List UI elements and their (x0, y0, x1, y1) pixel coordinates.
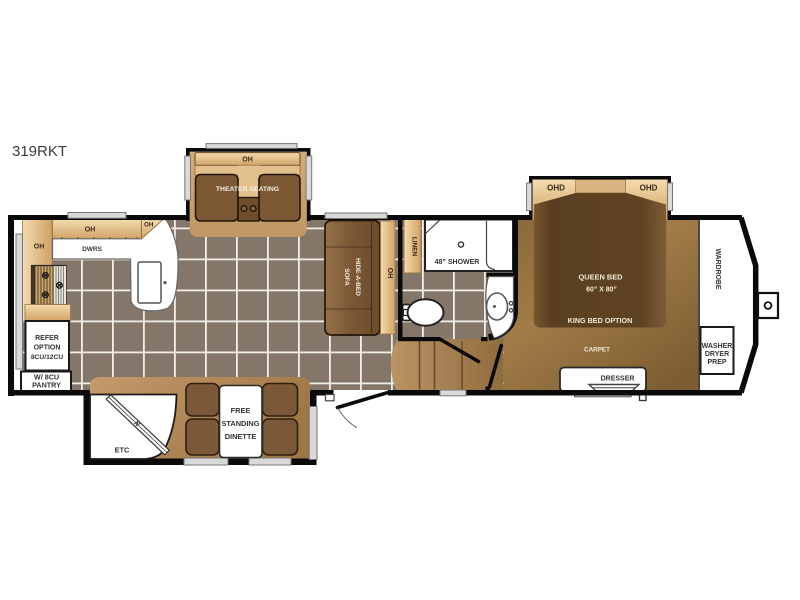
svg-text:48” SHOWER: 48” SHOWER (435, 259, 480, 266)
svg-text:OHD: OHD (640, 183, 658, 192)
svg-text:REFER: REFER (35, 335, 59, 342)
svg-text:319RKT: 319RKT (12, 143, 67, 160)
svg-text:WASHER: WASHER (702, 343, 733, 350)
svg-text:DRYER: DRYER (705, 351, 729, 358)
svg-text:ETC: ETC (115, 446, 130, 455)
svg-text:THEATER SEATING: THEATER SEATING (216, 186, 279, 193)
svg-text:DRESSER: DRESSER (601, 376, 635, 383)
svg-text:OH: OH (242, 157, 253, 164)
svg-text:60” X 80”: 60” X 80” (586, 286, 617, 293)
svg-text:OH: OH (386, 268, 393, 279)
svg-text:SOFA: SOFA (343, 268, 350, 286)
svg-text:OPTION: OPTION (34, 345, 61, 352)
svg-text:OH: OH (85, 227, 96, 234)
svg-text:LINEN: LINEN (411, 237, 418, 257)
svg-text:KING BED OPTION: KING BED OPTION (568, 316, 633, 325)
svg-text:OH: OH (34, 244, 45, 251)
svg-text:STANDING: STANDING (221, 419, 259, 428)
svg-text:WARDROBE: WARDROBE (714, 249, 721, 290)
svg-text:PREP: PREP (707, 359, 726, 366)
svg-text:PANTRY: PANTRY (32, 381, 61, 390)
svg-text:OHD: OHD (547, 183, 565, 192)
svg-text:QUEEN BED: QUEEN BED (579, 273, 624, 282)
svg-text:8CU/12CU: 8CU/12CU (31, 354, 64, 361)
svg-text:HIDE-A-BED: HIDE-A-BED (354, 258, 361, 296)
svg-text:CARPET: CARPET (584, 347, 610, 354)
svg-text:OH: OH (144, 222, 154, 229)
svg-text:DINETTE: DINETTE (225, 432, 257, 441)
svg-text:DWRS: DWRS (82, 246, 103, 253)
svg-text:FREE: FREE (231, 406, 251, 415)
